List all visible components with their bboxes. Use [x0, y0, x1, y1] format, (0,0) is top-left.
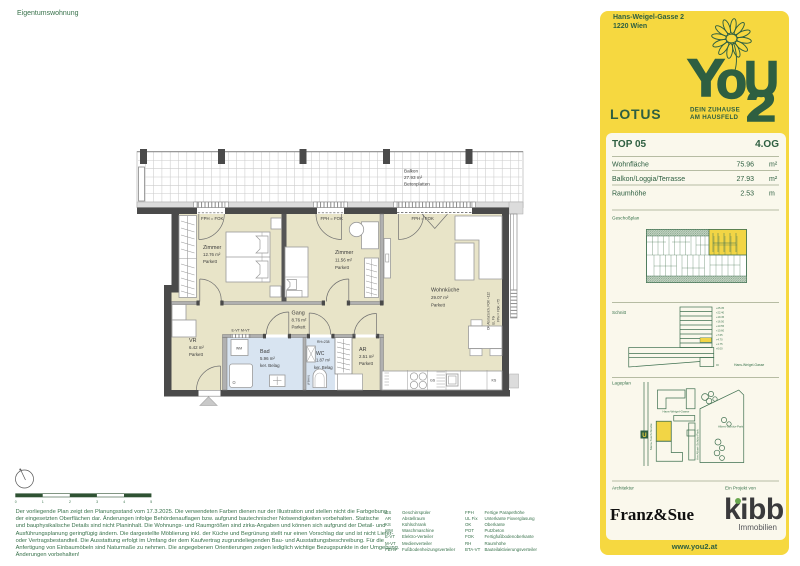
svg-text:Balkon: Balkon	[404, 169, 418, 174]
svg-text:RH=238: RH=238	[317, 340, 330, 344]
svg-text:AR: AR	[359, 347, 367, 353]
svg-text:Raumhöhe: Raumhöhe	[612, 191, 646, 198]
svg-text:+13.55: +13.55	[716, 324, 725, 328]
svg-text:12.76 m²: 12.76 m²	[203, 252, 221, 257]
svg-text:Geschoßplan: Geschoßplan	[612, 216, 640, 221]
svg-text:FPH = FOK: FPH = FOK	[412, 216, 434, 221]
svg-text:3: 3	[96, 500, 98, 504]
svg-text:UL Fix: UL Fix	[492, 316, 496, 325]
svg-text:+7.65: +7.65	[716, 333, 723, 337]
svg-text:FPH = FOK: FPH = FOK	[201, 216, 223, 221]
svg-text:27.93: 27.93	[736, 176, 754, 183]
svg-text:Parkett: Parkett	[203, 259, 218, 264]
svg-text:m²: m²	[769, 162, 778, 169]
svg-text:Bad: Bad	[260, 349, 270, 355]
svg-text:Parkett: Parkett	[359, 361, 374, 366]
svg-text:±0: ±0	[716, 363, 719, 367]
svg-text:8.76 m²: 8.76 m²	[292, 318, 307, 323]
svg-text:Hans-Weigel-Gasse: Hans-Weigel-Gasse	[734, 363, 764, 367]
svg-text:m: m	[769, 191, 775, 198]
svg-text:Parkett: Parkett	[335, 265, 350, 270]
svg-text:5: 5	[150, 500, 152, 504]
svg-text:Betonplatten: Betonplatten	[404, 182, 430, 187]
svg-text:U: U	[642, 433, 646, 439]
svg-text:+1.75: +1.75	[716, 342, 723, 346]
svg-text:ker. Belag: ker. Belag	[260, 363, 280, 368]
svg-text:+16.50: +16.50	[716, 320, 725, 324]
svg-text:OK Absturzsich. FOK +112: OK Absturzsich. FOK +112	[487, 292, 491, 330]
svg-text:Zimmer: Zimmer	[335, 250, 353, 256]
svg-text:2: 2	[69, 500, 71, 504]
svg-text:Parkett: Parkett	[431, 303, 446, 308]
svg-text:1: 1	[42, 500, 44, 504]
svg-text:2.51 m²: 2.51 m²	[359, 354, 374, 359]
svg-text:WC: WC	[316, 351, 325, 357]
svg-text:m²: m²	[769, 176, 778, 183]
svg-text:4: 4	[123, 500, 125, 504]
svg-text:Zimmer: Zimmer	[203, 245, 221, 251]
svg-text:(FBHV): (FBHV)	[307, 375, 311, 385]
svg-text:Parkett: Parkett	[292, 325, 307, 330]
svg-text:E-VT M-VT: E-VT M-VT	[232, 329, 251, 333]
svg-text:Parkett: Parkett	[189, 352, 204, 357]
svg-text:ker. Belag: ker. Belag	[314, 365, 333, 370]
svg-text:VR: VR	[189, 338, 197, 344]
svg-text:6.42 m²: 6.42 m²	[189, 345, 204, 350]
svg-text:11.56 m²: 11.56 m²	[335, 258, 353, 263]
svg-text:5.96 m²: 5.96 m²	[260, 356, 275, 361]
svg-text:Gang: Gang	[292, 311, 305, 317]
svg-text:FPH = FOK: FPH = FOK	[321, 216, 343, 221]
svg-text:Hans-Weigel-Gasse: Hans-Weigel-Gasse	[663, 410, 690, 414]
svg-text:Balkon/Loggia/Terrasse: Balkon/Loggia/Terrasse	[612, 176, 685, 183]
svg-text:+0.00: +0.00	[716, 347, 723, 351]
svg-text:+22.40: +22.40	[716, 311, 725, 315]
svg-text:WM: WM	[236, 347, 242, 351]
svg-text:29.07 m²: 29.07 m²	[431, 295, 449, 300]
svg-text:Albert-Schütz-Park: Albert-Schütz-Park	[718, 425, 744, 429]
svg-text:Architektur: Architektur	[612, 486, 634, 491]
svg-text:1.87 m²: 1.87 m²	[316, 358, 331, 363]
svg-text:+10.60: +10.60	[716, 329, 725, 333]
svg-text:GS: GS	[430, 379, 436, 383]
svg-text:0: 0	[15, 500, 17, 504]
svg-text:Am-Albert-Schütz-Park: Am-Albert-Schütz-Park	[696, 429, 700, 460]
svg-text:+19.45: +19.45	[716, 315, 725, 319]
svg-text:+25.35: +25.35	[716, 306, 725, 310]
svg-text:+4.70: +4.70	[716, 338, 723, 342]
svg-text:27.93 m²: 27.93 m²	[404, 175, 423, 180]
svg-text:Maria-Tusch-Straße: Maria-Tusch-Straße	[649, 423, 653, 450]
svg-text:KS: KS	[492, 379, 497, 383]
svg-text:Ein Projekt von: Ein Projekt von	[725, 486, 756, 491]
svg-text:FPH = FOK +75: FPH = FOK +75	[497, 299, 501, 322]
svg-text:Wohnfläche: Wohnfläche	[612, 162, 649, 169]
svg-text:Wohnküche: Wohnküche	[431, 288, 459, 294]
svg-text:2.53: 2.53	[740, 191, 754, 198]
svg-text:75.96: 75.96	[736, 162, 754, 169]
